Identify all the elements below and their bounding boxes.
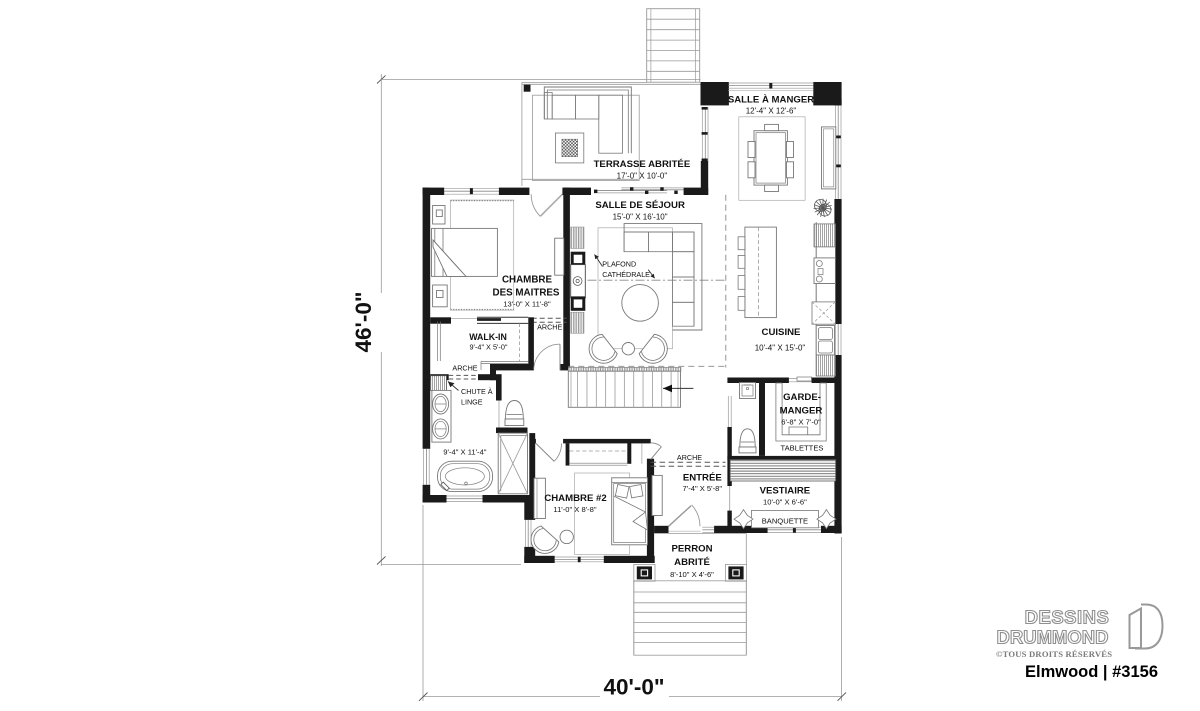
svg-text:11'-0" X 8'-8": 11'-0" X 8'-8" — [553, 505, 596, 514]
svg-text:©TOUS DROITS RÉSERVÉS: ©TOUS DROITS RÉSERVÉS — [996, 649, 1112, 659]
svg-text:Elmwood | #3156: Elmwood | #3156 — [1025, 663, 1158, 681]
svg-text:ABRITÉ: ABRITÉ — [674, 556, 710, 568]
svg-text:CHAMBRE #2: CHAMBRE #2 — [544, 493, 606, 504]
svg-text:ARCHE: ARCHE — [452, 364, 477, 373]
svg-text:10'-0" X 6'-6": 10'-0" X 6'-6" — [763, 498, 807, 507]
svg-text:VESTIAIRE: VESTIAIRE — [760, 486, 811, 497]
svg-text:40'-0": 40'-0" — [603, 675, 664, 700]
svg-text:17'-0" X 10'-0": 17'-0" X 10'-0" — [617, 172, 668, 181]
svg-text:CUISINE: CUISINE — [762, 327, 802, 338]
svg-text:SALLE DE SÉJOUR: SALLE DE SÉJOUR — [595, 199, 685, 211]
svg-text:BANQUETTE: BANQUETTE — [762, 516, 808, 525]
svg-text:GARDE-: GARDE- — [783, 392, 821, 403]
svg-text:MANGER: MANGER — [780, 406, 823, 417]
svg-text:WALK-IN: WALK-IN — [469, 332, 507, 342]
svg-text:PLAFOND: PLAFOND — [602, 260, 636, 269]
svg-text:8'-10" X 4'-6": 8'-10" X 4'-6" — [670, 570, 714, 579]
svg-text:ARCHE: ARCHE — [677, 453, 702, 462]
svg-text:ARCHE: ARCHE — [537, 323, 562, 332]
svg-text:ENTRÉE: ENTRÉE — [683, 472, 723, 484]
svg-text:12'-4" X 12'-6": 12'-4" X 12'-6" — [746, 106, 797, 115]
svg-text:13'-0" X 11'-8": 13'-0" X 11'-8" — [503, 299, 551, 308]
svg-text:TABLETTES: TABLETTES — [781, 444, 824, 453]
svg-text:TERRASSE ABRITÉE: TERRASSE ABRITÉE — [594, 158, 691, 170]
svg-text:46'-0": 46'-0" — [351, 291, 376, 352]
svg-text:10'-4" X 15'-0": 10'-4" X 15'-0" — [755, 344, 806, 353]
svg-text:CHUTE À: CHUTE À — [461, 387, 493, 396]
svg-text:SALLE À MANGER: SALLE À MANGER — [728, 93, 814, 105]
svg-text:6'-8" X 7'-0": 6'-8" X 7'-0" — [781, 418, 821, 427]
svg-text:15'-0" X 16'-10": 15'-0" X 16'-10" — [613, 213, 668, 222]
svg-text:9'-4" X 5'-0": 9'-4" X 5'-0" — [470, 343, 508, 352]
svg-text:DES MAITRES: DES MAITRES — [493, 288, 560, 299]
svg-text:7'-4" X 5'-8": 7'-4" X 5'-8" — [683, 484, 723, 493]
svg-text:CATHÉDRALE: CATHÉDRALE — [602, 270, 650, 279]
svg-text:LINGE: LINGE — [461, 398, 483, 407]
svg-text:PERRON: PERRON — [671, 544, 712, 555]
svg-text:9'-4" X 11'-4": 9'-4" X 11'-4" — [443, 448, 486, 457]
svg-text:DESSINS: DESSINS — [1025, 607, 1110, 628]
svg-text:CHAMBRE: CHAMBRE — [502, 274, 553, 285]
svg-text:DRUMMOND: DRUMMOND — [996, 627, 1108, 648]
